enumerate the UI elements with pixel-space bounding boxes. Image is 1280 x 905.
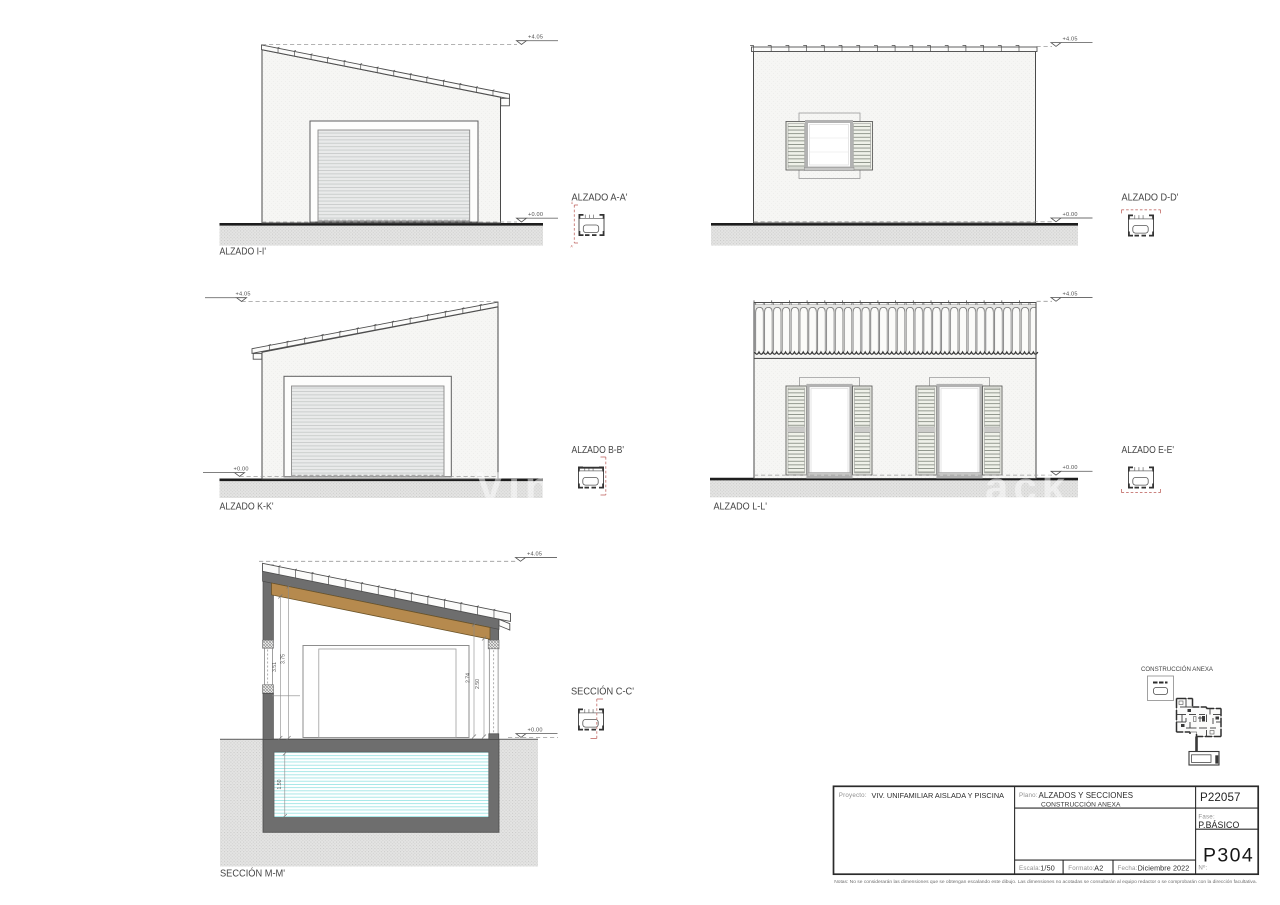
svg-text:CONSTRUCCIÓN ANEXA: CONSTRUCCIÓN ANEXA <box>1141 664 1213 673</box>
svg-text:ALZADO K-K': ALZADO K-K' <box>220 502 274 513</box>
svg-text:Formato:: Formato: <box>1068 865 1094 872</box>
svg-text:ALZADO E-E': ALZADO E-E' <box>1122 445 1175 456</box>
svg-text:Plano:: Plano: <box>1019 792 1038 799</box>
svg-text:A': A' <box>571 245 574 249</box>
svg-text:ALZADOS Y SECCIONES: ALZADOS Y SECCIONES <box>1039 791 1134 800</box>
svg-text:+4.05: +4.05 <box>528 35 543 41</box>
svg-text:Notas: No se considerarán las: Notas: No se considerarán las dimensione… <box>834 879 1257 885</box>
svg-text:+4.05: +4.05 <box>1063 36 1078 42</box>
svg-text:ALZADO L-L': ALZADO L-L' <box>714 502 768 513</box>
svg-text:P.BÁSICO: P.BÁSICO <box>1198 820 1239 830</box>
svg-text:Escala:: Escala: <box>1019 865 1041 872</box>
svg-text:+4.05: +4.05 <box>1063 291 1078 297</box>
svg-text:Proyecto:: Proyecto: <box>839 792 867 799</box>
svg-text:Nº:: Nº: <box>1198 865 1207 872</box>
svg-text:A2: A2 <box>1094 863 1103 872</box>
svg-text:1.50: 1.50 <box>277 779 283 789</box>
svg-text:+4.05: +4.05 <box>527 551 542 557</box>
svg-text:SECCIÓN C-C': SECCIÓN C-C' <box>571 685 634 698</box>
svg-text:SECCIÓN M-M': SECCIÓN M-M' <box>220 867 285 880</box>
svg-text:+0.00: +0.00 <box>528 727 543 733</box>
svg-text:ALZADO A-A': ALZADO A-A' <box>572 193 628 204</box>
svg-text:+4.05: +4.05 <box>236 292 251 298</box>
svg-text:P304: P304 <box>1203 845 1254 867</box>
svg-text:2.74: 2.74 <box>465 673 471 683</box>
svg-text:VIV. UNIFAMILIAR AISLADA Y PIS: VIV. UNIFAMILIAR AISLADA Y PISCINA <box>872 791 1005 800</box>
svg-text:ALZADO B-B': ALZADO B-B' <box>572 445 625 456</box>
svg-text:+0.00: +0.00 <box>1063 212 1078 218</box>
svg-text:2.50: 2.50 <box>475 679 481 689</box>
svg-text:P22057: P22057 <box>1200 791 1241 804</box>
svg-text:ALZADO D-D': ALZADO D-D' <box>1122 193 1179 204</box>
svg-text:Vin: Vin <box>476 463 556 510</box>
svg-text:Diciembre 2022: Diciembre 2022 <box>1138 863 1190 872</box>
svg-text:1/50: 1/50 <box>1040 863 1055 872</box>
svg-text:Fecha:: Fecha: <box>1118 865 1138 872</box>
svg-text:ack: ack <box>985 463 1070 510</box>
svg-text:+0.00: +0.00 <box>234 466 249 472</box>
svg-text:ALZADO I-I': ALZADO I-I' <box>220 247 267 258</box>
svg-text:+0.00: +0.00 <box>528 212 543 218</box>
svg-text:3.51: 3.51 <box>272 662 278 672</box>
svg-text:CONSTRUCCIÓN ANEXA: CONSTRUCCIÓN ANEXA <box>1041 799 1121 808</box>
svg-text:3.75: 3.75 <box>280 654 286 664</box>
